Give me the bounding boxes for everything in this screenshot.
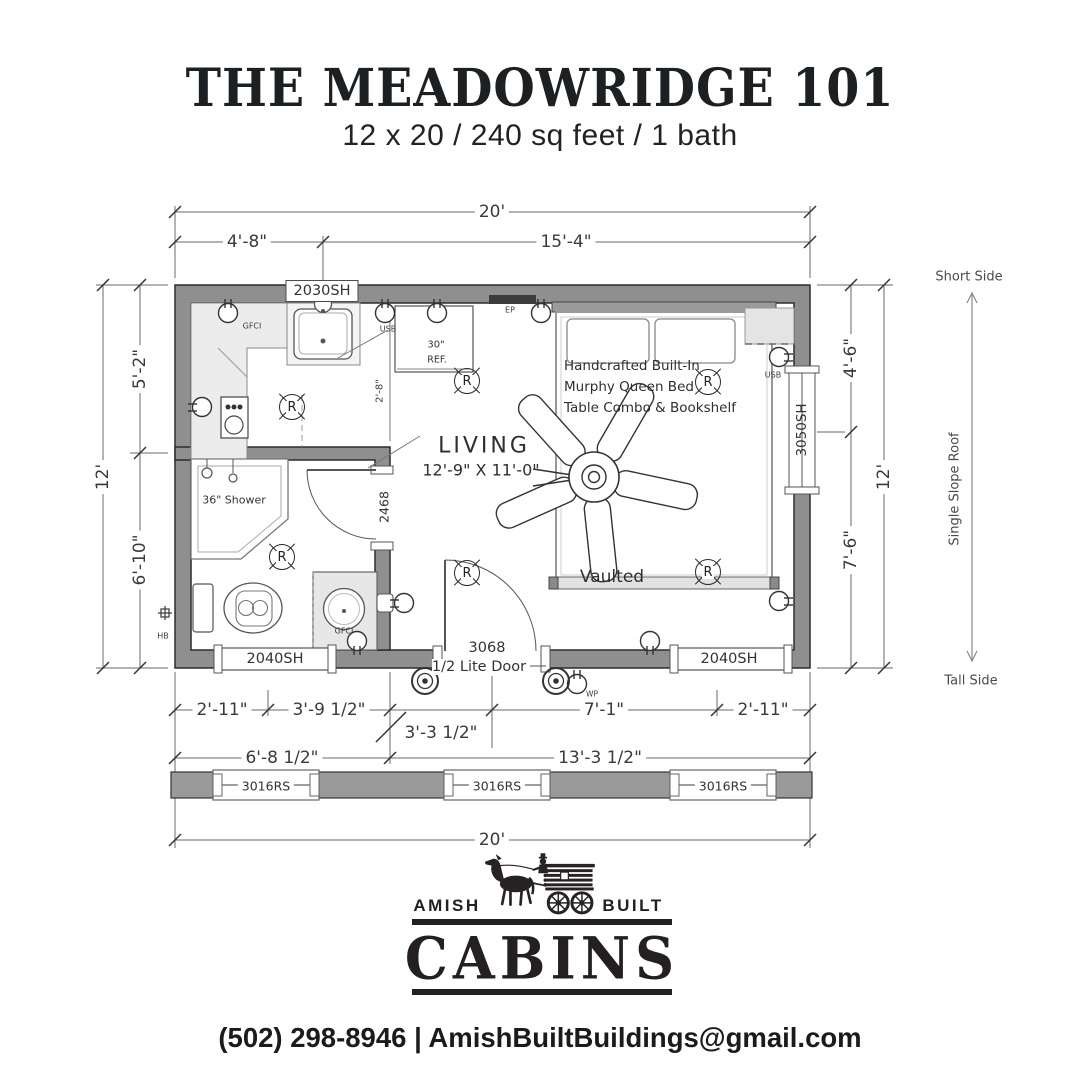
dim-right-upper: 4'-6" <box>841 334 861 382</box>
fridge-size-label: 30" <box>427 340 444 351</box>
dim-bottom-3: 3'-3 1/2" <box>400 723 481 743</box>
dim-bottom-4: 7'-1" <box>580 700 628 720</box>
recessed-light-icon: R <box>695 559 721 585</box>
bed-note-line1: Handcrafted Built-In <box>564 356 736 377</box>
brand-cabins: CABINS <box>405 923 679 992</box>
bath-door-swing <box>307 470 376 539</box>
recessed-light-icon: R <box>269 544 295 570</box>
shower-label: 36" Shower <box>202 494 266 507</box>
toilet <box>193 583 282 633</box>
brand-built: BUILT <box>602 896 663 916</box>
roof-arrow <box>967 293 977 661</box>
window-label-top: 2030SH <box>285 280 358 302</box>
bath-door-label: 2468 <box>377 491 392 523</box>
front-door-size-label: 3068 <box>469 640 506 656</box>
window-label-bottom-right: 2040SH <box>695 651 762 667</box>
outlet-icon <box>770 592 794 611</box>
dim-top-right: 15'-4" <box>536 232 595 252</box>
recessed-light-icon: R <box>279 394 305 420</box>
brand-amish: AMISH <box>413 896 480 916</box>
floor-plan-page: THE MEADOWRIDGE 101 12 x 20 / 240 sq fee… <box>0 0 1080 1080</box>
dim-right-lower: 7'-6" <box>841 526 861 574</box>
usb-right-label: USB <box>765 371 781 380</box>
horse-wagon-logo <box>478 852 602 920</box>
dim-bottom-6: 6'-8 1/2" <box>241 748 322 768</box>
window-label-right: 3050SH <box>794 403 810 456</box>
fridge-label: REF. <box>427 355 447 366</box>
roof-short-side-label: Short Side <box>935 270 1002 285</box>
front-door-type-label: 1/2 Lite Door <box>432 659 526 675</box>
dim-left-lower: 6'-10" <box>130 530 150 589</box>
bed-note-line3: Table Combo & Bookshelf <box>564 398 736 419</box>
usb-kitchen-label: USB <box>380 325 396 334</box>
vaulted-label: Vaulted <box>580 567 644 587</box>
recessed-light-icon: R <box>454 368 480 394</box>
roof-slope-label: Single Slope Roof <box>948 432 963 545</box>
gfci-kitchen-label: GFCI <box>243 322 262 331</box>
dim-right-total: 12' <box>874 460 894 494</box>
dim-bottom-5: 2'-11" <box>733 700 792 720</box>
window-label-bottom-left: 2040SH <box>241 651 308 667</box>
corner-shelf <box>745 308 794 344</box>
dim-counter-depth: 2'-8" <box>375 379 386 403</box>
dim-left-total: 12' <box>93 460 113 494</box>
wp-outlet-icon <box>568 670 587 694</box>
logo-divider-bottom <box>412 989 672 995</box>
outlet-icon <box>770 348 794 367</box>
kitchen-appliance <box>221 397 248 438</box>
window-label-rear-3: 3016RS <box>695 779 751 794</box>
recessed-light-icon: R <box>454 560 480 586</box>
electrical-panel-icon <box>489 295 536 304</box>
dim-left-upper: 5'-2" <box>130 345 150 393</box>
wp-label: WP <box>586 690 598 699</box>
living-label: LIVING <box>438 434 530 459</box>
bed-note-line2: Murphy Queen Bed <box>564 377 736 398</box>
dim-bottom-total: 20' <box>475 830 509 850</box>
bed-note: Handcrafted Built-In Murphy Queen Bed Ta… <box>564 356 736 419</box>
window-label-rear-2: 3016RS <box>469 779 525 794</box>
gfci-bath-label: GFCI <box>335 627 354 636</box>
dim-bottom-1: 2'-11" <box>192 700 251 720</box>
window-label-rear-1: 3016RS <box>238 779 294 794</box>
roof-tall-side-label: Tall Side <box>944 674 997 689</box>
hb-label: HB <box>157 632 169 641</box>
dim-bottom-2: 3'-9 1/2" <box>288 700 369 720</box>
living-dims-label: 12'-9" X 11'-0" <box>422 461 539 480</box>
kitchen-sink <box>287 296 360 366</box>
hose-bib-icon <box>158 606 172 620</box>
ep-label: EP <box>505 306 515 315</box>
dim-top-total: 20' <box>475 202 509 222</box>
contact-info: (502) 298-8946 | AmishBuiltBuildings@gma… <box>218 1022 861 1054</box>
dim-top-left: 4'-8" <box>223 232 271 252</box>
dim-bottom-7: 13'-3 1/2" <box>554 748 646 768</box>
